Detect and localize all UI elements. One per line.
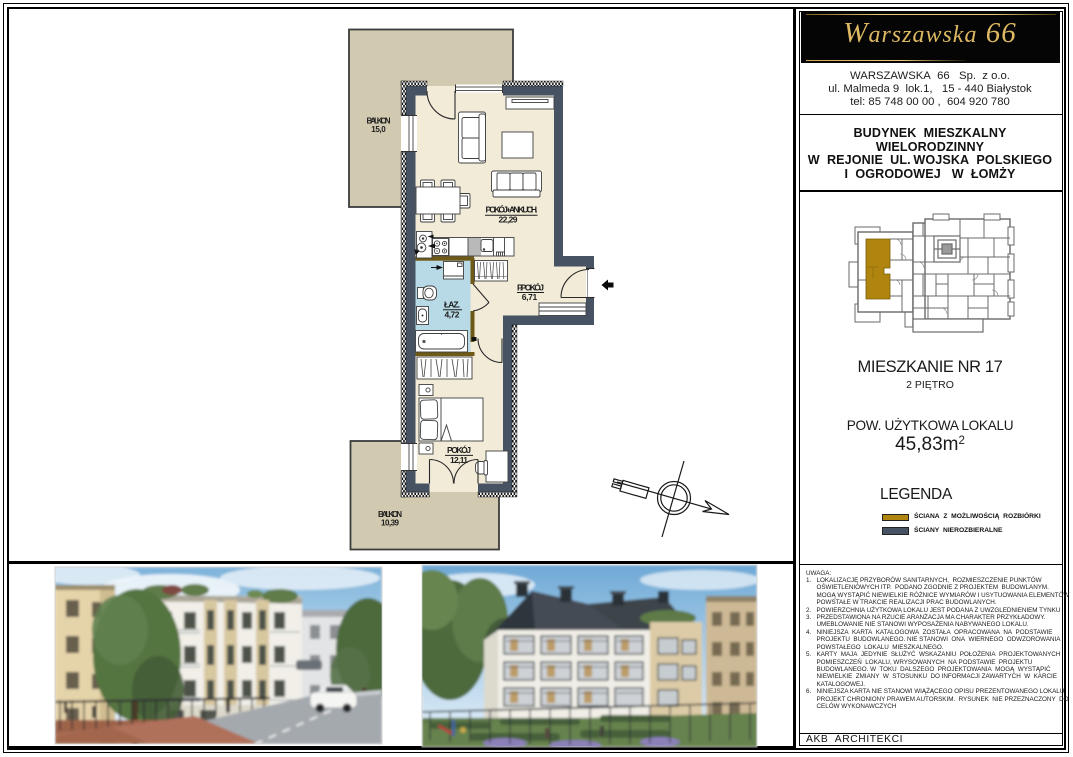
svg-text:22,29: 22,29 [499,215,518,225]
svg-text:POKÓJ+AN.KUCH.: POKÓJ+AN.KUCH. [486,204,538,215]
svg-text:6,71: 6,71 [522,292,538,302]
svg-text:P.POKÓJ: P.POKÓJ [517,281,544,292]
svg-text:POKÓJ: POKÓJ [447,444,471,455]
svg-text:15,0: 15,0 [371,125,386,134]
svg-text:ŁAZ.: ŁAZ. [444,300,460,310]
svg-text:10,39: 10,39 [381,519,400,528]
svg-text:4,72: 4,72 [445,309,460,319]
svg-text:12,11: 12,11 [450,455,468,465]
